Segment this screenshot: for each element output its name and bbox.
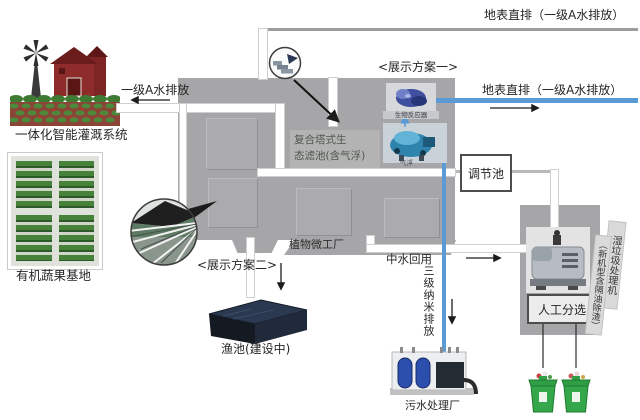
roof-panel xyxy=(384,198,440,238)
blue-pipe-to-sewage-plant xyxy=(442,147,446,352)
air-flotation-label: 气浮 xyxy=(400,159,413,167)
blue-pipe-surface-discharge xyxy=(424,98,638,103)
grade-a-discharge-label: 一级A水排放 xyxy=(121,83,189,98)
planting-bed xyxy=(16,161,52,208)
planting-bed xyxy=(16,215,52,262)
surface-discharge-line-top xyxy=(258,28,638,31)
crop-field xyxy=(10,95,120,103)
regulating-pool-box: 调节池 xyxy=(460,154,512,192)
sewage-plant-photo xyxy=(382,344,482,400)
roof-panel xyxy=(296,188,352,236)
surface-discharge-top-label: 地表直排（一级A水排放） xyxy=(484,8,624,23)
plan-two-label: <展示方案二> xyxy=(197,258,277,273)
plant-micro-factory-label: 植物微工厂 xyxy=(289,238,344,252)
pipe-water-reuse xyxy=(367,245,528,252)
waste-machine-photo xyxy=(526,227,590,293)
planting-bed xyxy=(59,215,95,262)
pipe-to-waste-machine xyxy=(551,170,558,230)
irrigation-system-label: 一体化智能灌溉系统 xyxy=(15,127,128,143)
facility-footprint-wing-left xyxy=(232,240,278,253)
fish-pond-photo xyxy=(203,294,313,346)
eco-system-flow-diagram: 复合塔式生 态滤池(含气浮) xyxy=(0,0,640,420)
pipe-to-farm xyxy=(117,104,284,112)
plan-one-label: <展示方案一> xyxy=(378,60,458,75)
surface-discharge-mid-label: 地表直排（一级A水排放） xyxy=(482,83,622,98)
bioreactor-photo xyxy=(386,83,436,112)
farm-illustration xyxy=(10,38,120,126)
fish-pond-label: 渔池(建设中) xyxy=(221,342,290,357)
plant-factory-photo xyxy=(129,197,221,267)
planting-bed xyxy=(59,161,95,208)
bioreactor-label: 生物反应器 xyxy=(383,111,439,119)
barn-icon xyxy=(50,46,108,96)
nano-discharge-label: 三级纳米排放 xyxy=(420,265,436,345)
pipe-cross-horizontal xyxy=(258,169,455,176)
roof-panel xyxy=(206,118,258,170)
organic-base-label: 有机蔬果基地 xyxy=(16,268,91,284)
sewage-plant-label: 污水处理厂 xyxy=(405,399,460,413)
windmill-icon xyxy=(23,40,48,98)
air-flotation-photo xyxy=(383,123,447,163)
pipe-mid-vertical xyxy=(276,104,284,176)
green-bin xyxy=(528,370,558,414)
green-bin xyxy=(561,370,591,414)
detail-magnifier-badge xyxy=(266,46,304,82)
pipe-filter-feed xyxy=(329,78,337,126)
vegetable-base-illustration xyxy=(8,153,102,269)
